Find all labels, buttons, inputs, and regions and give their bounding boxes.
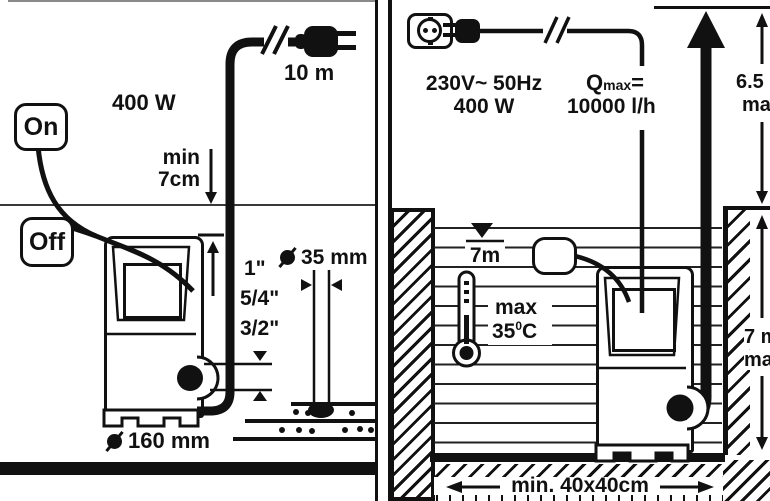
- pump-diameter-label: 160 mm: [106, 430, 210, 452]
- power-cable-left: [197, 42, 306, 411]
- ground-bar-left: [0, 462, 376, 475]
- qmax-label: Qmax=: [586, 72, 644, 94]
- head-dim-top-head: [756, 13, 768, 27]
- qmax-value: 10000 l/h: [567, 96, 656, 117]
- hose-diameter-label: 35 mm: [279, 247, 368, 268]
- water-surface-line-left: [0, 204, 376, 206]
- thread-size-3: 3/2": [240, 318, 279, 339]
- switch-off-box: Off: [20, 217, 74, 267]
- pump-body-right: [596, 266, 694, 453]
- power-label-right: 400 W: [425, 96, 543, 117]
- gravel-layers: [233, 402, 375, 441]
- thread-size-1: 1": [244, 258, 266, 279]
- immersion-dim-top-head: [756, 215, 768, 229]
- thread-size-2: 5/4": [240, 288, 279, 309]
- pump-handle-frame-right: [612, 288, 676, 352]
- pipe-arrow-right: [301, 279, 312, 291]
- ground-below-right: [723, 460, 770, 501]
- pump-body-left: [104, 236, 204, 418]
- temp-max-label: max 350C: [488, 295, 552, 345]
- pump-handle-frame-left: [123, 263, 182, 319]
- diameter-icon: [106, 433, 123, 450]
- panel-divider-line-a: [375, 0, 378, 501]
- cable-break-icon: [262, 26, 288, 54]
- suction-pipe: [314, 270, 329, 410]
- plug-icon: [295, 26, 356, 57]
- supply-cable: [480, 31, 642, 66]
- pit-wall-left: [390, 208, 435, 501]
- switch-off-label: Off: [29, 228, 65, 257]
- flow-arrow-icon: [687, 11, 725, 48]
- head-dim-bottom-head: [756, 191, 768, 204]
- dim-arrow-down-head: [205, 192, 217, 204]
- immersion-max: max: [744, 350, 770, 370]
- min-depth-label-2: 7cm: [145, 169, 200, 190]
- pipe-arrow-left: [331, 279, 342, 291]
- level-mark-down: [253, 351, 267, 361]
- dim-arrow-up-head: [207, 241, 219, 253]
- switch-on-label: On: [24, 113, 59, 142]
- level-mark-up: [253, 391, 267, 401]
- switch-on-box: On: [14, 103, 68, 151]
- pump-instruction-diagram: 400 W 10 m min 7cm 1" 5/4" 3/2" 35 mm 16…: [0, 0, 770, 501]
- immersion-dim-bottom-head: [756, 437, 768, 450]
- left-panel-top-border: [8, 0, 376, 2]
- pit-size-label: min. 40x40cm: [504, 475, 656, 496]
- cable-break-icon: [545, 17, 569, 43]
- min-depth-label-1: min: [152, 147, 200, 168]
- water-level-label: 7m: [465, 245, 505, 266]
- diameter-icon: [279, 249, 296, 266]
- discharge-top-line: [654, 6, 770, 9]
- head-height-value: 6.5 m: [736, 72, 770, 92]
- power-label-left: 400 W: [112, 92, 176, 114]
- float-switch-icon: [532, 237, 577, 275]
- socket-icon: [407, 13, 453, 49]
- immersion-value: 7 m: [744, 327, 770, 347]
- pipe-foot: [308, 402, 334, 418]
- pit-bottom-bar: [430, 453, 725, 462]
- cable-length-label: 10 m: [284, 62, 334, 84]
- head-height-max: max: [742, 95, 770, 115]
- voltage-label: 230V~ 50Hz: [425, 73, 543, 94]
